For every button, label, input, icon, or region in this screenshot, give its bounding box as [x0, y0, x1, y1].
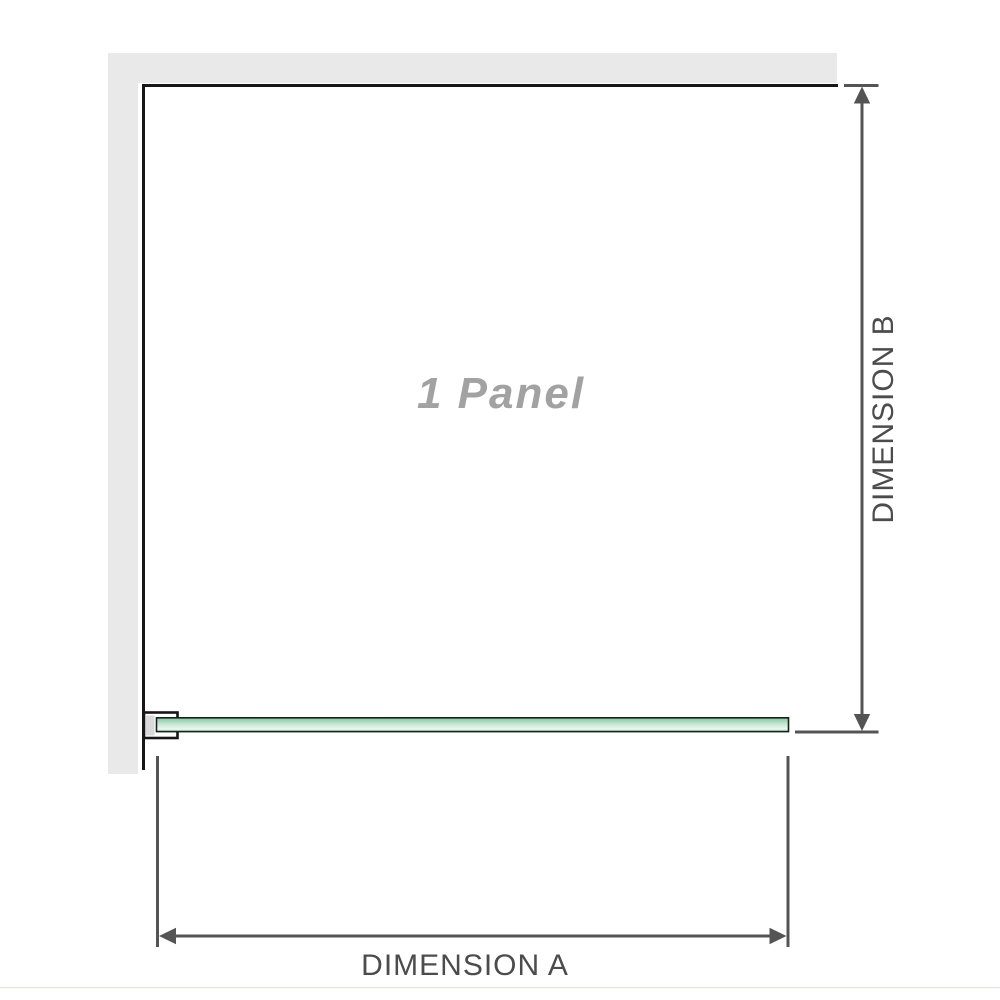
wall-top [108, 53, 837, 83]
panel-frame-outline [144, 86, 839, 771]
dimension-b-arrowhead-down-icon [854, 714, 870, 731]
wall-side [108, 53, 138, 774]
bracket-wall-pad [146, 716, 155, 736]
dimension-a-arrowhead-left-icon [159, 928, 176, 944]
diagram-canvas [0, 0, 1000, 1000]
glass-panel [157, 718, 789, 732]
dimension-b-arrowhead-up-icon [854, 87, 870, 104]
dimension-b-label: DIMENSION B [867, 314, 901, 523]
panel-dimension-diagram: 1 Panel DIMENSION B DIMENSION A [0, 0, 1000, 1000]
panel-count-label: 1 Panel [417, 369, 585, 419]
dimension-a-label: DIMENSION A [361, 949, 569, 983]
dimension-a-arrowhead-right-icon [770, 928, 787, 944]
